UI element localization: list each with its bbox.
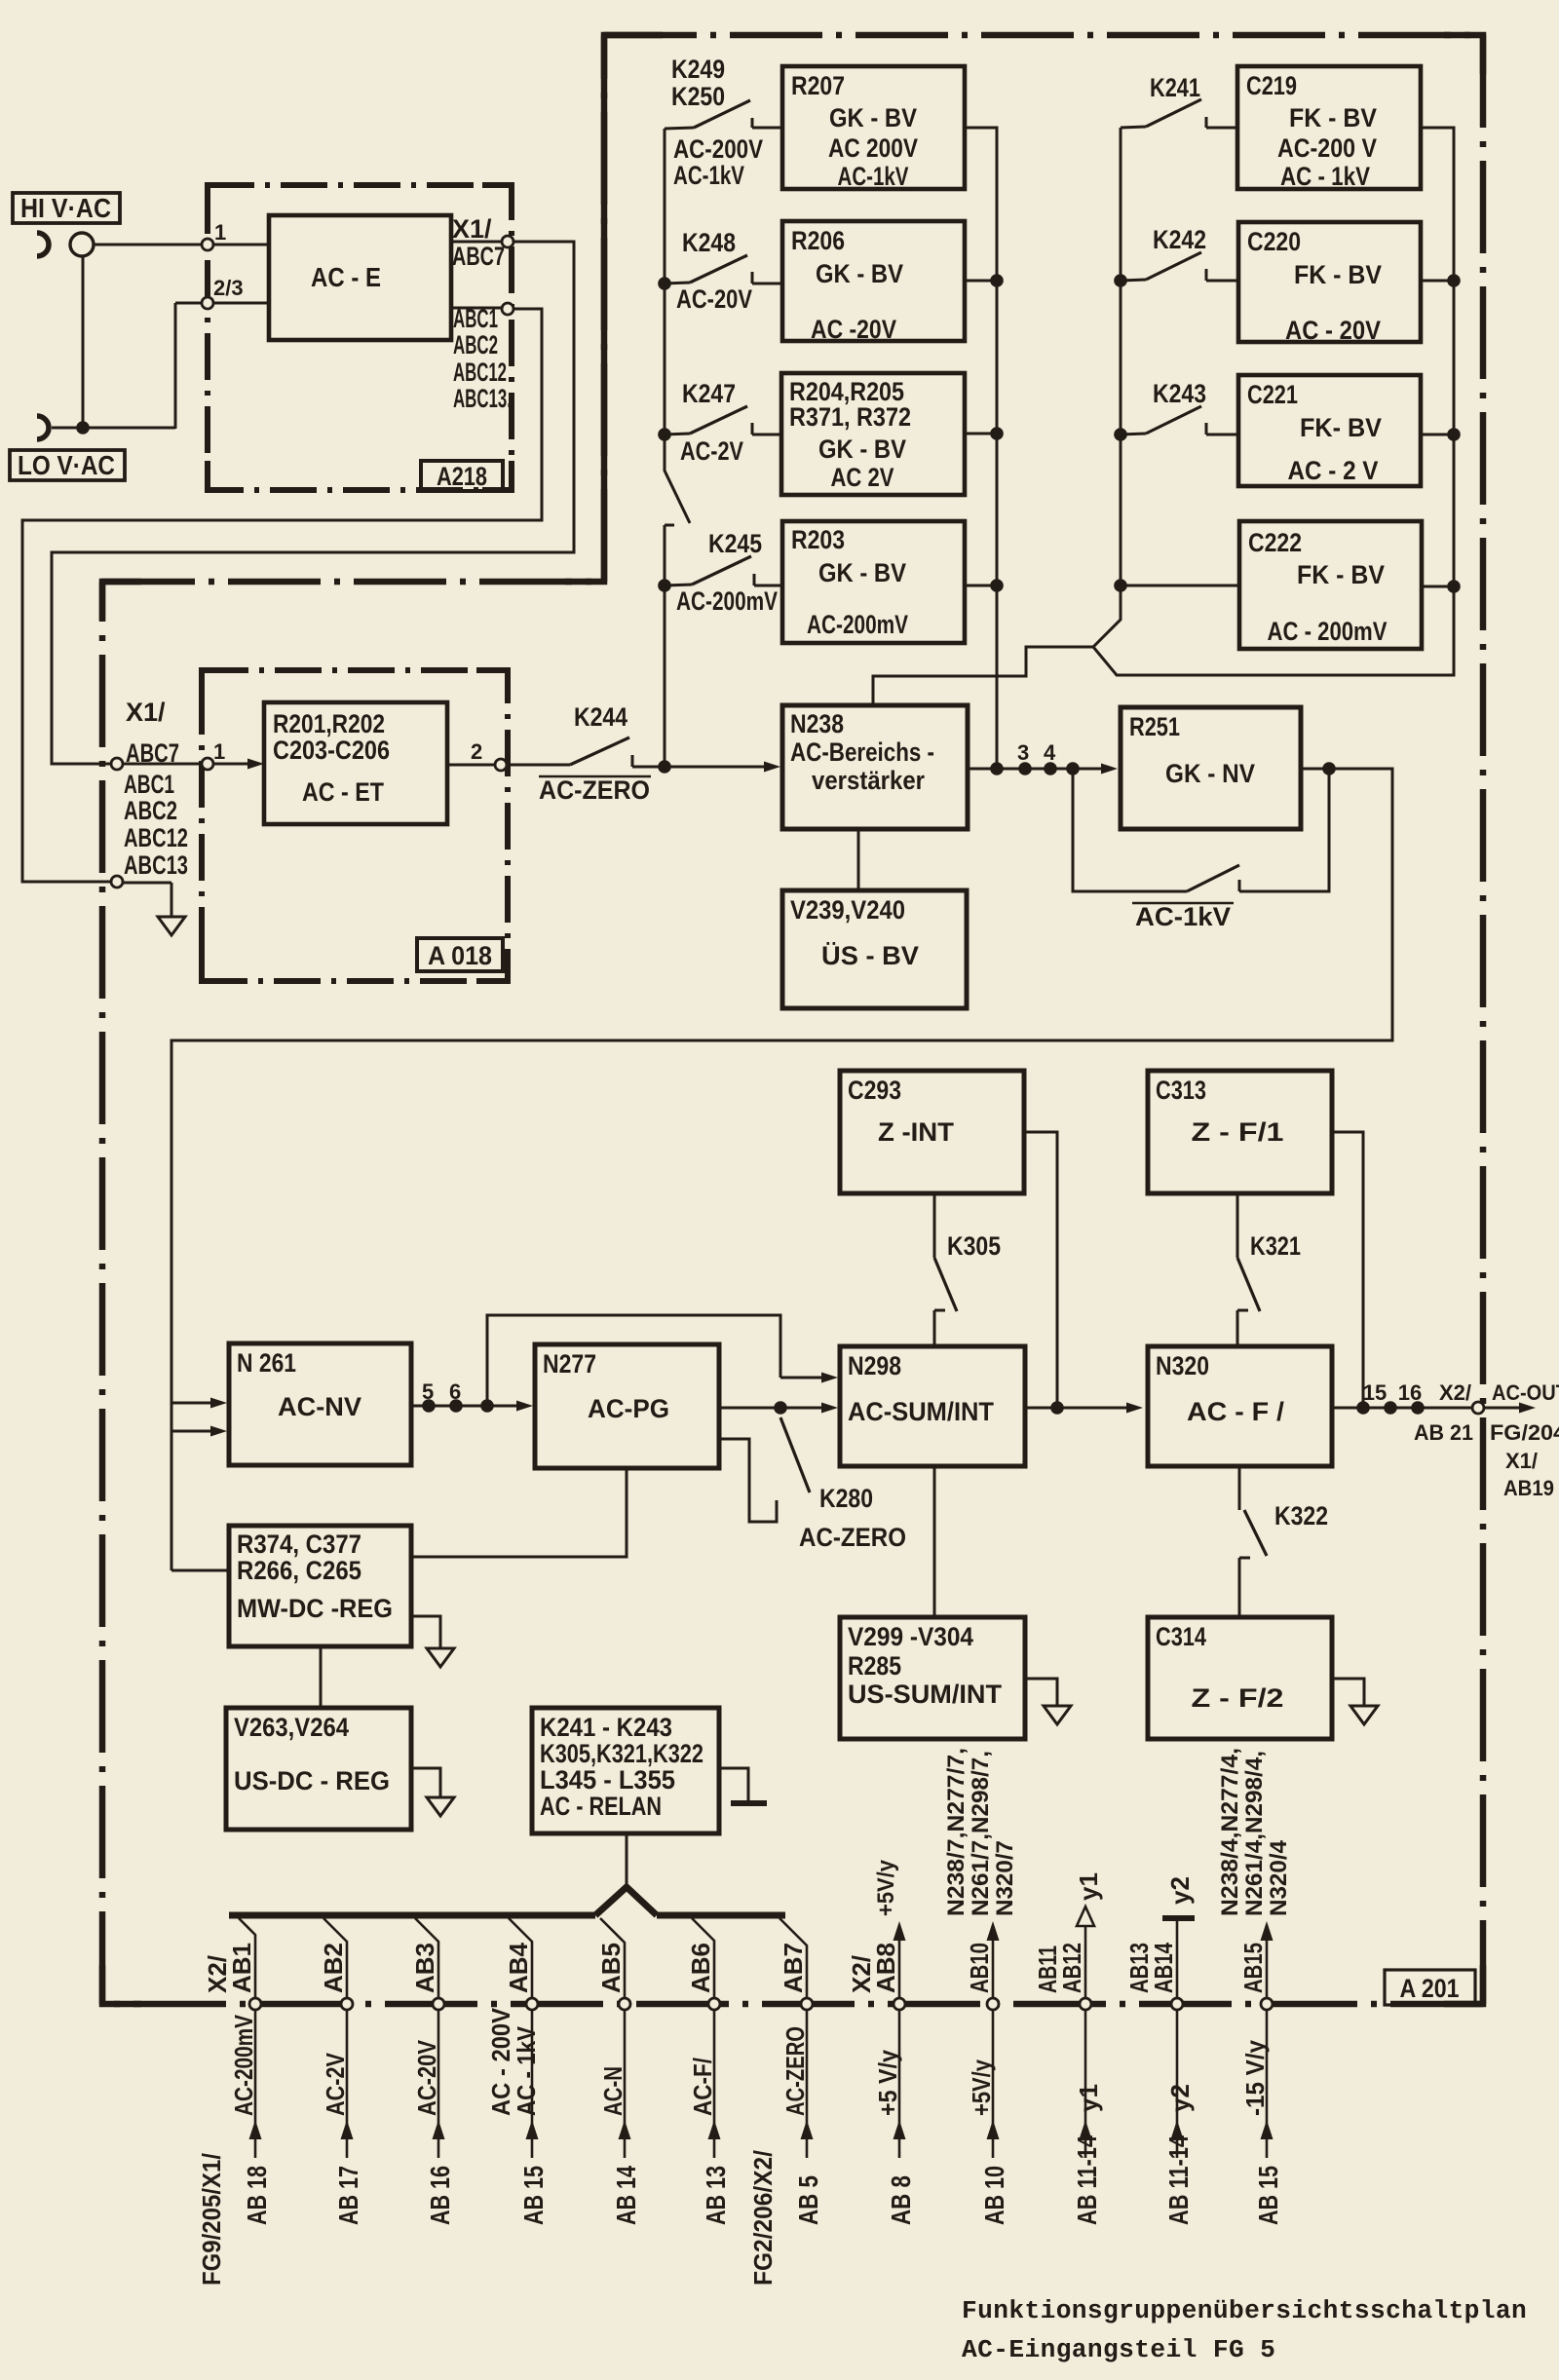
svg-text:AC - ET: AC - ET bbox=[302, 777, 384, 807]
svg-text:AC-20V: AC-20V bbox=[676, 284, 752, 314]
svg-text:AC-OUT: AC-OUT bbox=[1492, 1380, 1559, 1405]
svg-text:AC - 1kV: AC - 1kV bbox=[512, 2025, 541, 2116]
svg-text:R266, C265: R266, C265 bbox=[237, 1556, 361, 1585]
svg-text:R206: R206 bbox=[791, 226, 845, 255]
svg-text:AC - 2 V: AC - 2 V bbox=[1288, 456, 1379, 485]
svg-text:C222: C222 bbox=[1248, 528, 1302, 557]
svg-text:GK - BV: GK - BV bbox=[816, 259, 903, 288]
svg-text:Funktionsgruppenübersichtsscha: Funktionsgruppenübersichtsschaltplan bbox=[962, 2296, 1527, 2325]
svg-text:AB 15: AB 15 bbox=[1253, 2166, 1283, 2225]
svg-text:FK - BV: FK - BV bbox=[1289, 103, 1377, 132]
svg-text:AC - 20V: AC - 20V bbox=[1285, 316, 1381, 345]
svg-text:ABC1: ABC1 bbox=[124, 770, 174, 799]
svg-text:AB12: AB12 bbox=[1057, 1943, 1086, 1993]
svg-text:V263,V264: V263,V264 bbox=[234, 1713, 349, 1742]
svg-text:K248: K248 bbox=[682, 228, 736, 257]
svg-text:AC 200V: AC 200V bbox=[828, 133, 918, 163]
svg-text:y2: y2 bbox=[1165, 1876, 1195, 1905]
svg-text:K250: K250 bbox=[671, 82, 725, 111]
svg-text:AC-ZERO: AC-ZERO bbox=[799, 1523, 906, 1552]
svg-text:R201,R202: R201,R202 bbox=[273, 709, 385, 738]
svg-text:R285: R285 bbox=[848, 1651, 901, 1681]
svg-text:K241: K241 bbox=[1150, 73, 1200, 102]
svg-text:FK - BV: FK - BV bbox=[1297, 560, 1385, 589]
svg-text:AB 14: AB 14 bbox=[611, 2166, 641, 2225]
svg-text:A218: A218 bbox=[437, 462, 487, 491]
svg-text:AC-SUM/INT: AC-SUM/INT bbox=[848, 1397, 994, 1426]
svg-text:Z - F/1: Z - F/1 bbox=[1192, 1117, 1284, 1147]
svg-text:C219: C219 bbox=[1246, 71, 1297, 100]
svg-text:+5V/y: +5V/y bbox=[967, 2059, 996, 2116]
svg-text:K305,K321,K322: K305,K321,K322 bbox=[540, 1739, 703, 1768]
svg-text:AB6: AB6 bbox=[686, 1943, 715, 1993]
svg-text:AC-1kV: AC-1kV bbox=[838, 162, 909, 191]
svg-text:15: 15 bbox=[1363, 1380, 1387, 1405]
svg-text:AB19: AB19 bbox=[1503, 1476, 1554, 1500]
svg-text:6: 6 bbox=[449, 1379, 461, 1404]
svg-text:N298: N298 bbox=[848, 1351, 901, 1380]
svg-text:AC-2V: AC-2V bbox=[680, 436, 743, 466]
svg-text:N261/4,N298/4,: N261/4,N298/4, bbox=[1241, 1751, 1268, 1916]
svg-text:AC-N: AC-N bbox=[598, 2066, 627, 2116]
svg-text:GK - BV: GK - BV bbox=[818, 434, 906, 464]
svg-text:R374, C377: R374, C377 bbox=[237, 1530, 361, 1559]
svg-text:AB 11-14: AB 11-14 bbox=[1072, 2135, 1102, 2225]
svg-text:C293: C293 bbox=[848, 1076, 901, 1105]
svg-text:AC-1kV: AC-1kV bbox=[1135, 902, 1231, 931]
svg-text:N238/4,N277/4,: N238/4,N277/4, bbox=[1217, 1748, 1243, 1916]
svg-text:V299 -V304: V299 -V304 bbox=[848, 1622, 973, 1651]
svg-text:K241 - K243: K241 - K243 bbox=[540, 1713, 672, 1742]
svg-text:N 261: N 261 bbox=[237, 1348, 296, 1378]
svg-text:y2: y2 bbox=[1165, 2084, 1195, 2112]
svg-text:AC-200mV: AC-200mV bbox=[807, 610, 908, 639]
svg-text:AB1: AB1 bbox=[227, 1943, 256, 1993]
svg-text:AC-200mV: AC-200mV bbox=[676, 586, 778, 616]
svg-text:AC-Bereichs -: AC-Bereichs - bbox=[790, 737, 934, 767]
svg-text:ABC13.: ABC13. bbox=[453, 384, 512, 413]
svg-text:MW-DC -REG: MW-DC -REG bbox=[237, 1594, 393, 1623]
svg-text:N320/4: N320/4 bbox=[1266, 1839, 1292, 1916]
svg-text:X2/: X2/ bbox=[1439, 1380, 1471, 1405]
svg-text:N238: N238 bbox=[790, 709, 844, 738]
svg-text:ABC1: ABC1 bbox=[453, 304, 498, 333]
svg-text:AB 13: AB 13 bbox=[701, 2166, 731, 2225]
svg-text:AB 16: AB 16 bbox=[425, 2166, 455, 2225]
svg-text:AC-200V: AC-200V bbox=[673, 134, 763, 164]
svg-text:C220: C220 bbox=[1247, 227, 1301, 256]
svg-text:AC-ZERO: AC-ZERO bbox=[539, 775, 650, 805]
svg-text:AC-PG: AC-PG bbox=[588, 1394, 669, 1423]
svg-text:AB5: AB5 bbox=[596, 1943, 626, 1993]
svg-text:AB7: AB7 bbox=[779, 1943, 808, 1993]
svg-text:FG9/205/X1/: FG9/205/X1/ bbox=[197, 2153, 226, 2286]
svg-text:Z -INT: Z -INT bbox=[878, 1117, 955, 1147]
svg-text:K280: K280 bbox=[819, 1484, 873, 1513]
svg-text:AB15: AB15 bbox=[1238, 1943, 1268, 1993]
svg-text:GK - BV: GK - BV bbox=[818, 558, 906, 587]
svg-text:AB 5: AB 5 bbox=[793, 2175, 823, 2225]
svg-text:ÜS - BV: ÜS - BV bbox=[821, 941, 919, 970]
svg-text:X1/: X1/ bbox=[452, 214, 492, 244]
svg-text:A 201: A 201 bbox=[1400, 1974, 1460, 2003]
svg-text:ABC2: ABC2 bbox=[124, 796, 177, 825]
svg-text:N238/7,N277/7,: N238/7,N277/7, bbox=[943, 1748, 970, 1916]
svg-text:N261/7,N298/7,: N261/7,N298/7, bbox=[968, 1751, 994, 1916]
svg-text:AB14: AB14 bbox=[1149, 1943, 1178, 1993]
svg-text:C313: C313 bbox=[1156, 1076, 1206, 1105]
svg-text:AB 10: AB 10 bbox=[979, 2166, 1009, 2225]
svg-text:verstärker: verstärker bbox=[812, 766, 925, 795]
svg-text:C314: C314 bbox=[1156, 1622, 1206, 1651]
svg-text:N277: N277 bbox=[543, 1349, 596, 1379]
svg-text:AC - 200mV: AC - 200mV bbox=[1268, 617, 1388, 646]
svg-text:16: 16 bbox=[1398, 1380, 1422, 1405]
svg-text:AC 2V: AC 2V bbox=[831, 463, 894, 492]
svg-text:FK- BV: FK- BV bbox=[1300, 413, 1382, 442]
svg-text:K243: K243 bbox=[1153, 379, 1206, 408]
svg-text:R251: R251 bbox=[1129, 712, 1180, 741]
svg-text:AB 15: AB 15 bbox=[518, 2166, 549, 2225]
svg-text:2: 2 bbox=[471, 739, 482, 764]
svg-text:GK - NV: GK - NV bbox=[1165, 759, 1255, 788]
svg-text:GK - BV: GK - BV bbox=[829, 103, 917, 132]
svg-text:3: 3 bbox=[1017, 740, 1029, 765]
svg-text:K242: K242 bbox=[1153, 225, 1206, 254]
svg-text:V239,V240: V239,V240 bbox=[790, 895, 905, 925]
svg-text:X1/: X1/ bbox=[126, 698, 166, 727]
svg-text:US-SUM/INT: US-SUM/INT bbox=[848, 1680, 1003, 1709]
svg-text:+5V/y: +5V/y bbox=[873, 1859, 899, 1916]
svg-text:-15 V/y: -15 V/y bbox=[1240, 2039, 1270, 2116]
svg-text:AB3: AB3 bbox=[410, 1943, 439, 1993]
svg-text:X1/: X1/ bbox=[1505, 1449, 1538, 1473]
svg-text:AB 17: AB 17 bbox=[333, 2166, 363, 2225]
svg-text:AC-1kV: AC-1kV bbox=[673, 161, 744, 190]
svg-text:US-DC - REG: US-DC - REG bbox=[234, 1766, 390, 1795]
svg-text:C221: C221 bbox=[1247, 380, 1298, 409]
svg-text:AC - 1kV: AC - 1kV bbox=[1280, 162, 1370, 191]
svg-text:FG2/206/X2/: FG2/206/X2/ bbox=[748, 2150, 778, 2286]
svg-text:AC-Eingangsteil FG 5: AC-Eingangsteil FG 5 bbox=[962, 2335, 1275, 2364]
svg-text:AB8: AB8 bbox=[871, 1943, 900, 1993]
svg-text:ABC7: ABC7 bbox=[452, 242, 505, 271]
svg-text:R371, R372: R371, R372 bbox=[789, 402, 911, 432]
svg-text:AC-ZERO: AC-ZERO bbox=[780, 2026, 810, 2116]
svg-text:A 018: A 018 bbox=[428, 941, 492, 970]
svg-text:FG/204: FG/204 bbox=[1490, 1420, 1559, 1445]
svg-text:AC - RELAN: AC - RELAN bbox=[540, 1792, 662, 1821]
svg-text:AC-2V: AC-2V bbox=[321, 2052, 350, 2116]
svg-text:AB4: AB4 bbox=[504, 1942, 533, 1993]
svg-text:5: 5 bbox=[422, 1379, 434, 1404]
svg-text:AB2: AB2 bbox=[319, 1943, 348, 1993]
svg-text:2/3: 2/3 bbox=[213, 276, 244, 300]
svg-text:AB 18: AB 18 bbox=[242, 2166, 272, 2225]
svg-text:AC-NV: AC-NV bbox=[278, 1392, 361, 1421]
svg-text:AB10: AB10 bbox=[965, 1943, 994, 1993]
svg-text:K247: K247 bbox=[682, 379, 736, 408]
svg-text:L345 - L355: L345 - L355 bbox=[540, 1765, 675, 1794]
svg-text:R203: R203 bbox=[791, 525, 845, 554]
svg-text:AB 8: AB 8 bbox=[886, 2175, 916, 2225]
svg-text:K249: K249 bbox=[671, 55, 725, 84]
svg-text:AC - F /: AC - F / bbox=[1187, 1397, 1285, 1426]
svg-text:AB 11-14: AB 11-14 bbox=[1163, 2135, 1194, 2225]
svg-text:1: 1 bbox=[214, 220, 226, 245]
svg-text:AC-200 V: AC-200 V bbox=[1277, 133, 1377, 163]
svg-text:ABC12: ABC12 bbox=[453, 358, 507, 387]
svg-text:LO V·AC: LO V·AC bbox=[18, 450, 115, 480]
svg-text:4: 4 bbox=[1044, 740, 1056, 765]
svg-text:y1: y1 bbox=[1074, 2084, 1103, 2112]
svg-text:K245: K245 bbox=[708, 529, 762, 558]
svg-text:ABC13: ABC13 bbox=[124, 850, 188, 880]
svg-text:Z - F/2: Z - F/2 bbox=[1192, 1683, 1284, 1713]
svg-text:N320: N320 bbox=[1156, 1351, 1209, 1380]
svg-text:C203-C206: C203-C206 bbox=[273, 736, 390, 765]
svg-text:ABC12: ABC12 bbox=[124, 823, 188, 852]
svg-text:N320/7: N320/7 bbox=[992, 1840, 1018, 1916]
svg-text:K321: K321 bbox=[1250, 1231, 1301, 1261]
svg-text:ABC2: ABC2 bbox=[453, 330, 498, 359]
svg-text:R207: R207 bbox=[791, 71, 845, 100]
svg-text:1: 1 bbox=[213, 739, 225, 764]
svg-text:AC-200mV: AC-200mV bbox=[229, 2014, 258, 2116]
svg-text:y1: y1 bbox=[1074, 1872, 1103, 1901]
svg-text:AC -20V: AC -20V bbox=[811, 315, 896, 344]
svg-text:AC-20V: AC-20V bbox=[412, 2039, 441, 2116]
svg-text:FK - BV: FK - BV bbox=[1294, 260, 1382, 289]
svg-text:HI V·AC: HI V·AC bbox=[20, 193, 111, 223]
svg-text:K322: K322 bbox=[1274, 1501, 1328, 1530]
svg-text:AC - E: AC - E bbox=[311, 262, 381, 292]
svg-text:K244: K244 bbox=[574, 702, 627, 732]
svg-text:+5 V/y: +5 V/y bbox=[873, 2050, 902, 2116]
svg-text:AB 21: AB 21 bbox=[1414, 1420, 1473, 1445]
svg-text:K305: K305 bbox=[947, 1231, 1001, 1261]
svg-text:AC-F/: AC-F/ bbox=[688, 2058, 717, 2116]
